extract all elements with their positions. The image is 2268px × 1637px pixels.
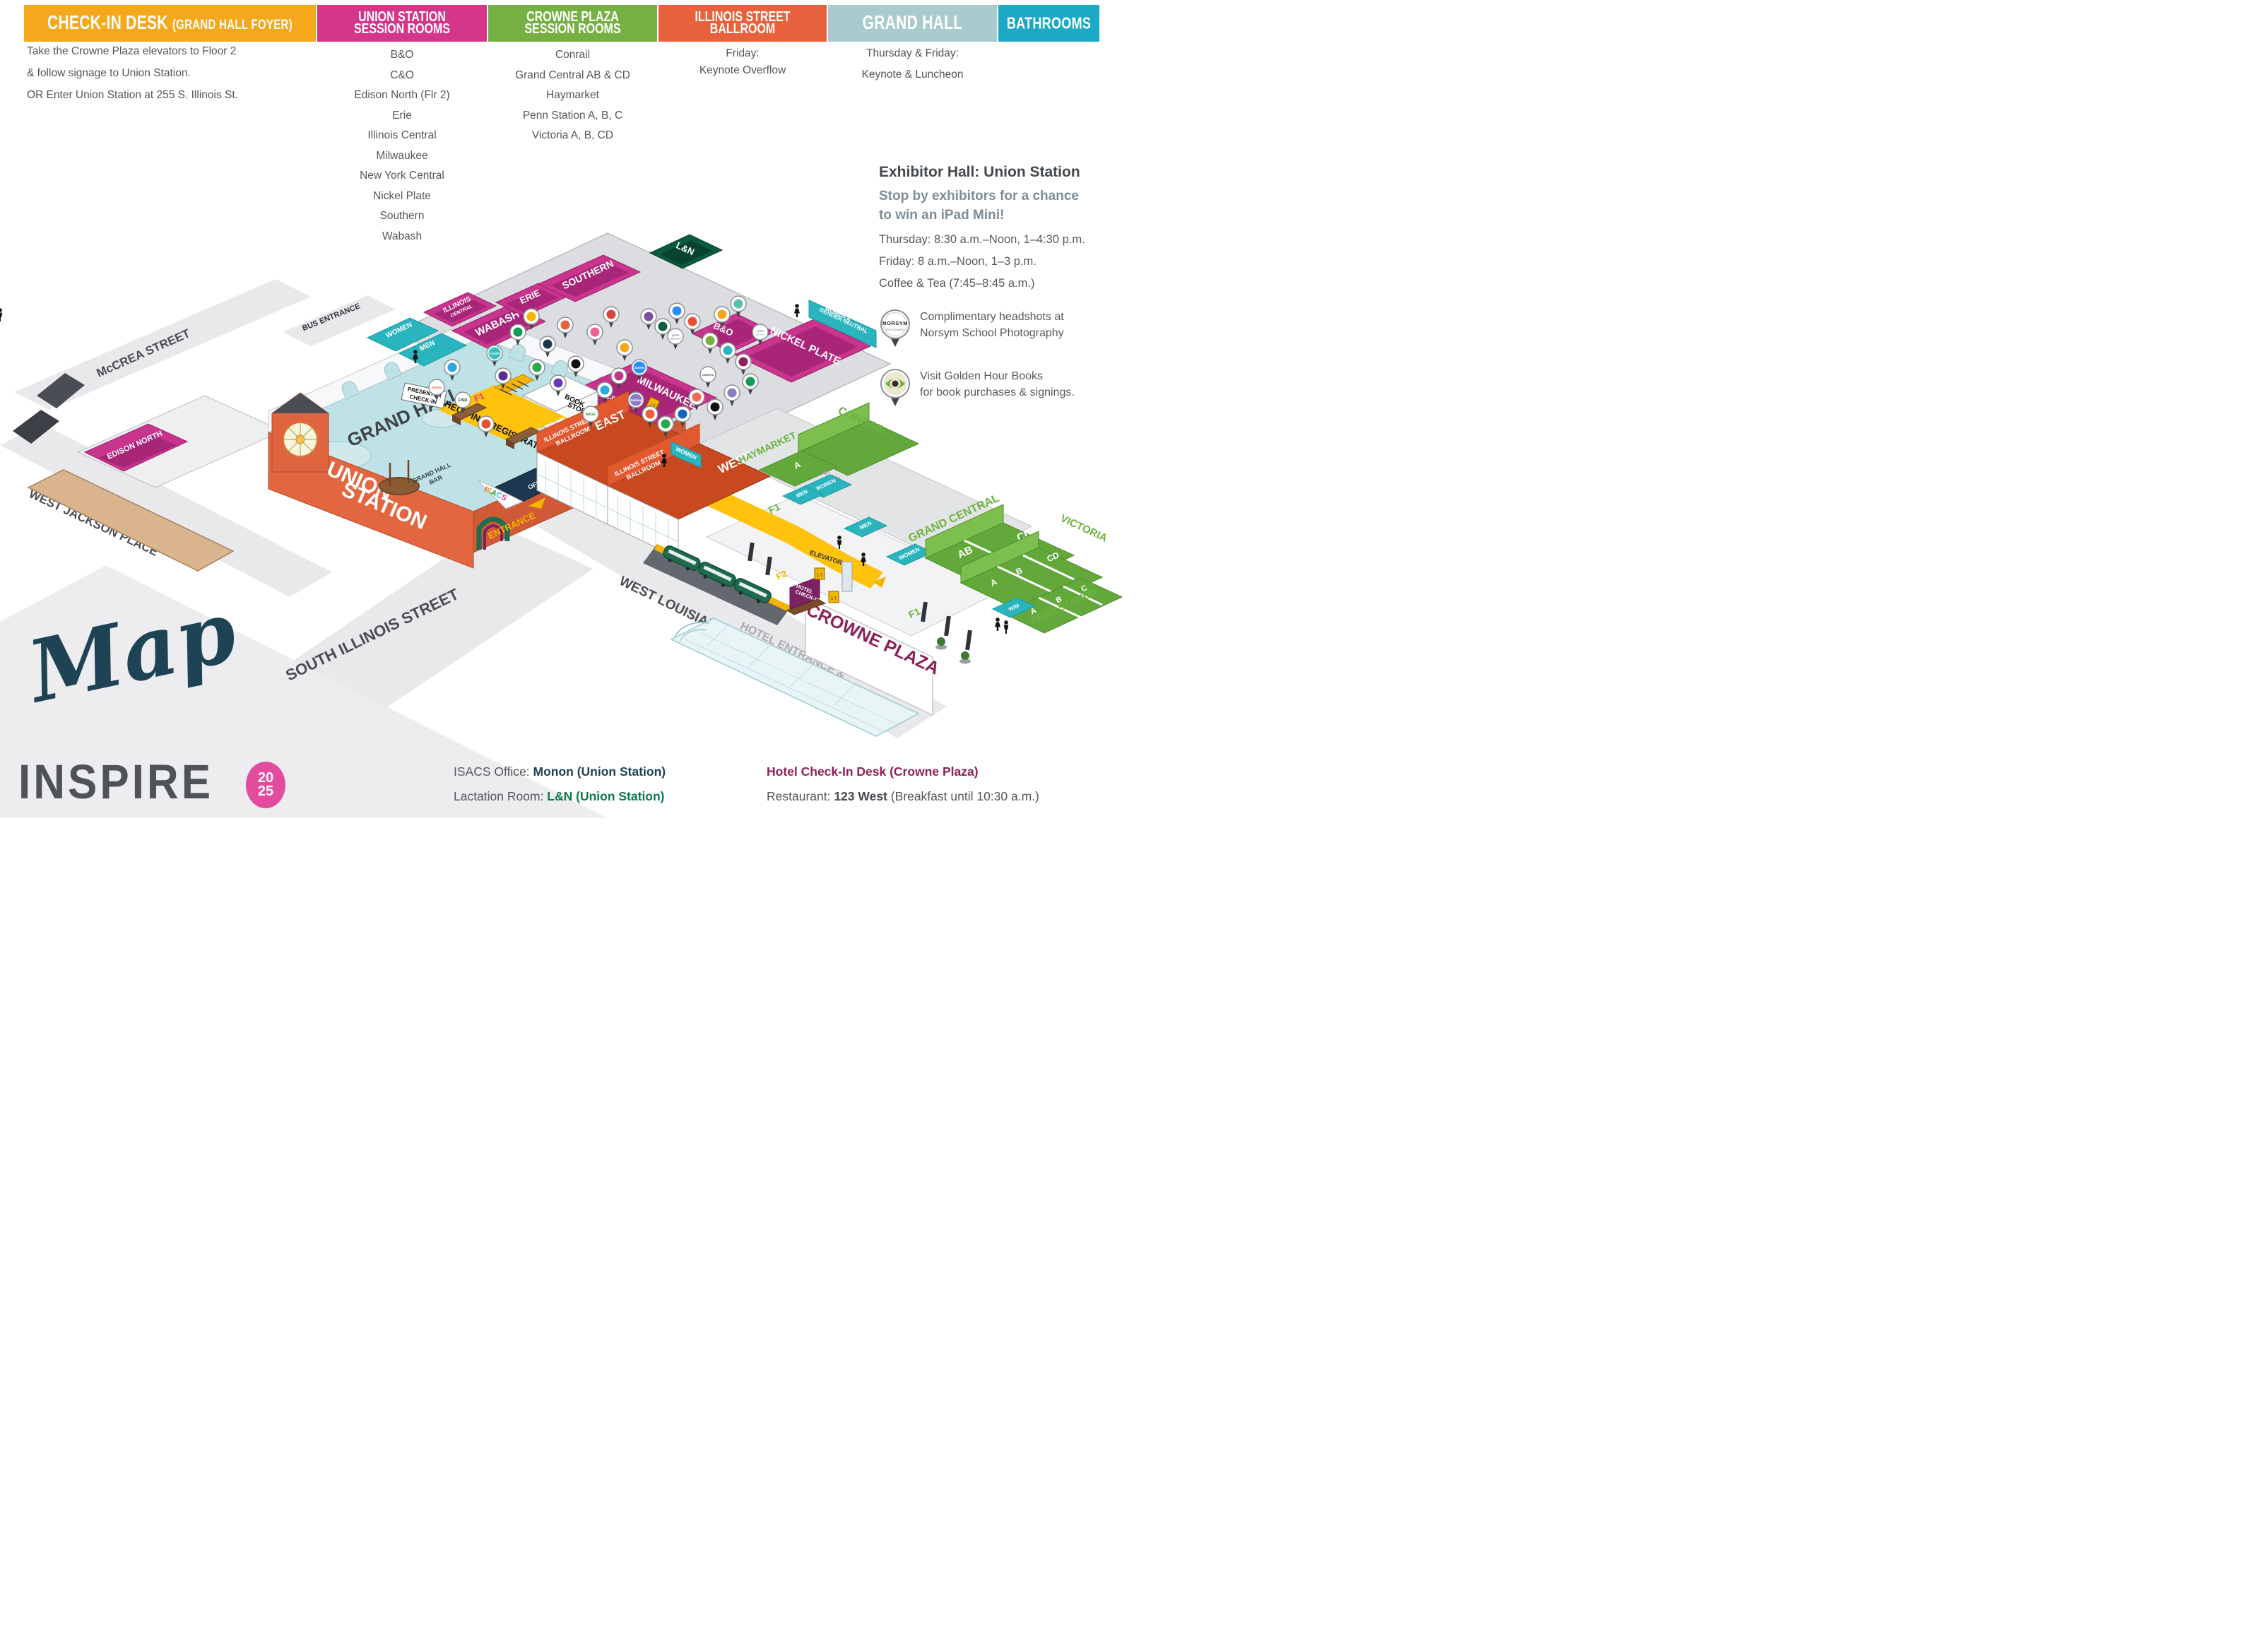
ballroom-schedule-line: Keynote Overflow bbox=[658, 62, 827, 79]
header-bathrooms-title: BATHROOMS bbox=[1007, 13, 1091, 32]
norsym-pin-subtext: PHOTOGRAPHY bbox=[886, 329, 905, 331]
header-crowne-line2: SESSION ROOMS bbox=[524, 22, 620, 37]
header-union-station-rooms: UNION STATION SESSION ROOMS bbox=[317, 5, 487, 42]
conference-map-page: McCREA STREET WEST JACKSON PLACE SOUTH I… bbox=[0, 0, 1134, 818]
header-ballroom-line2: BALLROOM bbox=[710, 22, 775, 37]
svg-text:NORSYM: NORSYM bbox=[702, 374, 714, 377]
svg-text:grand: grand bbox=[672, 334, 679, 337]
restaurant-label: Restaurant: bbox=[767, 789, 834, 803]
inspire-year-bottom: 25 bbox=[258, 785, 273, 798]
exhibitor-hall-title: Exhibitor Hall: Union Station bbox=[879, 164, 1112, 181]
hotel-desk-value: Hotel Check-In Desk (Crowne Plaza) bbox=[767, 764, 979, 779]
ballroom-schedule-line: Friday: bbox=[658, 45, 827, 62]
isacs-office-label: ISACS Office: bbox=[454, 764, 533, 779]
norsym-pin-text: NORSYM bbox=[882, 320, 908, 326]
svg-text:Subbey: Subbey bbox=[630, 398, 642, 402]
golden-hour-legend: Visit Golden Hour Books for book purchas… bbox=[879, 365, 1112, 409]
checkin-desk-directions: Take the Crowne Plaza elevators to Floor… bbox=[27, 45, 317, 111]
golden-hour-note-line1: Visit Golden Hour Books bbox=[920, 368, 1075, 384]
header-grand-hall: GRAND HALL bbox=[828, 5, 997, 42]
exhibitor-hall-subtitle-2: to win an iPad Mini! bbox=[879, 206, 1112, 225]
room-list-item: Penn Station A, B, C bbox=[488, 106, 657, 126]
golden-hour-note: Visit Golden Hour Books for book purchas… bbox=[920, 365, 1075, 401]
exhibitor-hours-thursday: Thursday: 8:30 a.m.–Noon, 1–4:30 p.m. bbox=[879, 233, 1112, 247]
norsym-note-line2: Norsym School Photography bbox=[920, 325, 1064, 341]
elevator-icon-b: ↓↑ bbox=[815, 568, 825, 579]
header-illinois-ballroom: ILLINOIS STREET BALLROOM bbox=[658, 5, 827, 42]
lactation-room-label: Lactation Room: bbox=[454, 789, 547, 803]
svg-text:START: START bbox=[490, 352, 500, 355]
room-list-item: Illinois Central bbox=[317, 126, 487, 146]
room-list-item: Milwaukee bbox=[317, 146, 487, 167]
svg-text:genius: genius bbox=[756, 333, 764, 336]
ballroom-schedule: Friday: Keynote Overflow bbox=[658, 45, 827, 79]
room-list-item: Haymarket bbox=[488, 85, 657, 106]
header-union-station-line2: SESSION ROOMS bbox=[354, 22, 450, 37]
exhibitor-hours-friday: Friday: 8 a.m.–Noon, 1–3 p.m. bbox=[879, 255, 1112, 268]
room-list-item: B&O bbox=[317, 45, 487, 66]
inspire-year-badge: 20 25 bbox=[246, 762, 285, 808]
svg-text:zoom: zoom bbox=[634, 366, 644, 370]
checkin-direction-line: OR Enter Union Station at 255 S. Illinoi… bbox=[27, 89, 317, 102]
golden-hour-note-line2: for book purchases & signings. bbox=[920, 384, 1075, 401]
norsym-note-line1: Complimentary headshots at bbox=[920, 309, 1064, 325]
exhibitor-hall-subtitle-1: Stop by exhibitors for a chance bbox=[879, 187, 1112, 206]
union-station-room-list: B&OC&OEdison North (Flr 2)ErieIllinois C… bbox=[317, 45, 487, 247]
room-list-item: Nickel Plate bbox=[317, 187, 487, 207]
room-victoria-label: VICTORIA bbox=[1058, 512, 1109, 545]
lactation-room-value: L&N (Union Station) bbox=[547, 789, 664, 803]
svg-text:classroom: classroom bbox=[670, 338, 681, 341]
header-grand-hall-title: GRAND HALL bbox=[863, 12, 963, 34]
room-list-item: Edison North (Flr 2) bbox=[317, 85, 487, 106]
norsym-pin-icon: NORSYM PHOTOGRAPHY bbox=[879, 306, 911, 350]
grand-hall-schedule-line: Keynote & Luncheon bbox=[828, 66, 997, 83]
elevator-arrows-b: ↓↑ bbox=[817, 571, 823, 578]
elevator-arrows-c: ↓↑ bbox=[831, 594, 837, 601]
svg-text:SAGE: SAGE bbox=[586, 413, 596, 417]
golden-hour-pin-icon bbox=[879, 365, 911, 409]
room-list-item: Victoria A, B, CD bbox=[488, 126, 657, 146]
restaurant-note: (Breakfast until 10:30 a.m.) bbox=[887, 789, 1039, 803]
exhibitor-hall-panel: Exhibitor Hall: Union Station Stop by ex… bbox=[879, 164, 1112, 409]
restaurant-line: Restaurant: 123 West (Breakfast until 10… bbox=[767, 789, 1039, 804]
elevator-icon-c: ↓↑ bbox=[829, 591, 839, 603]
room-list-item: Southern bbox=[317, 206, 487, 227]
room-list-item: New York Central bbox=[317, 166, 487, 187]
isacs-office-line: ISACS Office: Monon (Union Station) bbox=[454, 764, 666, 779]
header-checkin-desk: CHECK-IN DESK (GRAND HALL FOYER) bbox=[24, 5, 316, 42]
checkin-direction-line: Take the Crowne Plaza elevators to Floor… bbox=[27, 45, 317, 58]
checkin-direction-line: & follow signage to Union Station. bbox=[27, 67, 317, 80]
room-list-item: Wabash bbox=[317, 227, 487, 247]
grand-hall-schedule-line: Thursday & Friday: bbox=[828, 45, 997, 62]
svg-text:FISD: FISD bbox=[459, 398, 468, 403]
inspire-logo: INSPIRE bbox=[18, 755, 213, 810]
header-crowne-plaza-rooms: CROWNE PLAZA SESSION ROOMS bbox=[488, 5, 657, 42]
room-list-item: Erie bbox=[317, 106, 487, 126]
exhibitor-hours-coffee: Coffee & Tea (7:45–8:45 a.m.) bbox=[879, 277, 1112, 290]
hotel-desk-line: Hotel Check-In Desk (Crowne Plaza) bbox=[767, 764, 979, 779]
norsym-legend: NORSYM PHOTOGRAPHY Complimentary headsho… bbox=[879, 306, 1112, 350]
room-list-item: Grand Central AB & CD bbox=[488, 66, 657, 86]
header-checkin-desk-title: CHECK-IN DESK (GRAND HALL FOYER) bbox=[47, 12, 293, 34]
crowne-plaza-room-list: ConrailGrand Central AB & CDHaymarketPen… bbox=[488, 45, 657, 146]
room-list-item: Conrail bbox=[488, 45, 657, 66]
svg-text:metric: metric bbox=[432, 386, 442, 390]
norsym-note: Complimentary headshots at Norsym School… bbox=[920, 306, 1064, 341]
restaurant-value: 123 West bbox=[834, 789, 887, 803]
grand-hall-schedule: Thursday & Friday: Keynote & Luncheon bbox=[828, 45, 997, 83]
lactation-room-line: Lactation Room: L&N (Union Station) bbox=[454, 789, 665, 804]
isacs-office-value: Monon (Union Station) bbox=[533, 764, 666, 779]
header-bathrooms: BATHROOMS bbox=[998, 5, 1099, 42]
room-list-item: C&O bbox=[317, 66, 487, 86]
